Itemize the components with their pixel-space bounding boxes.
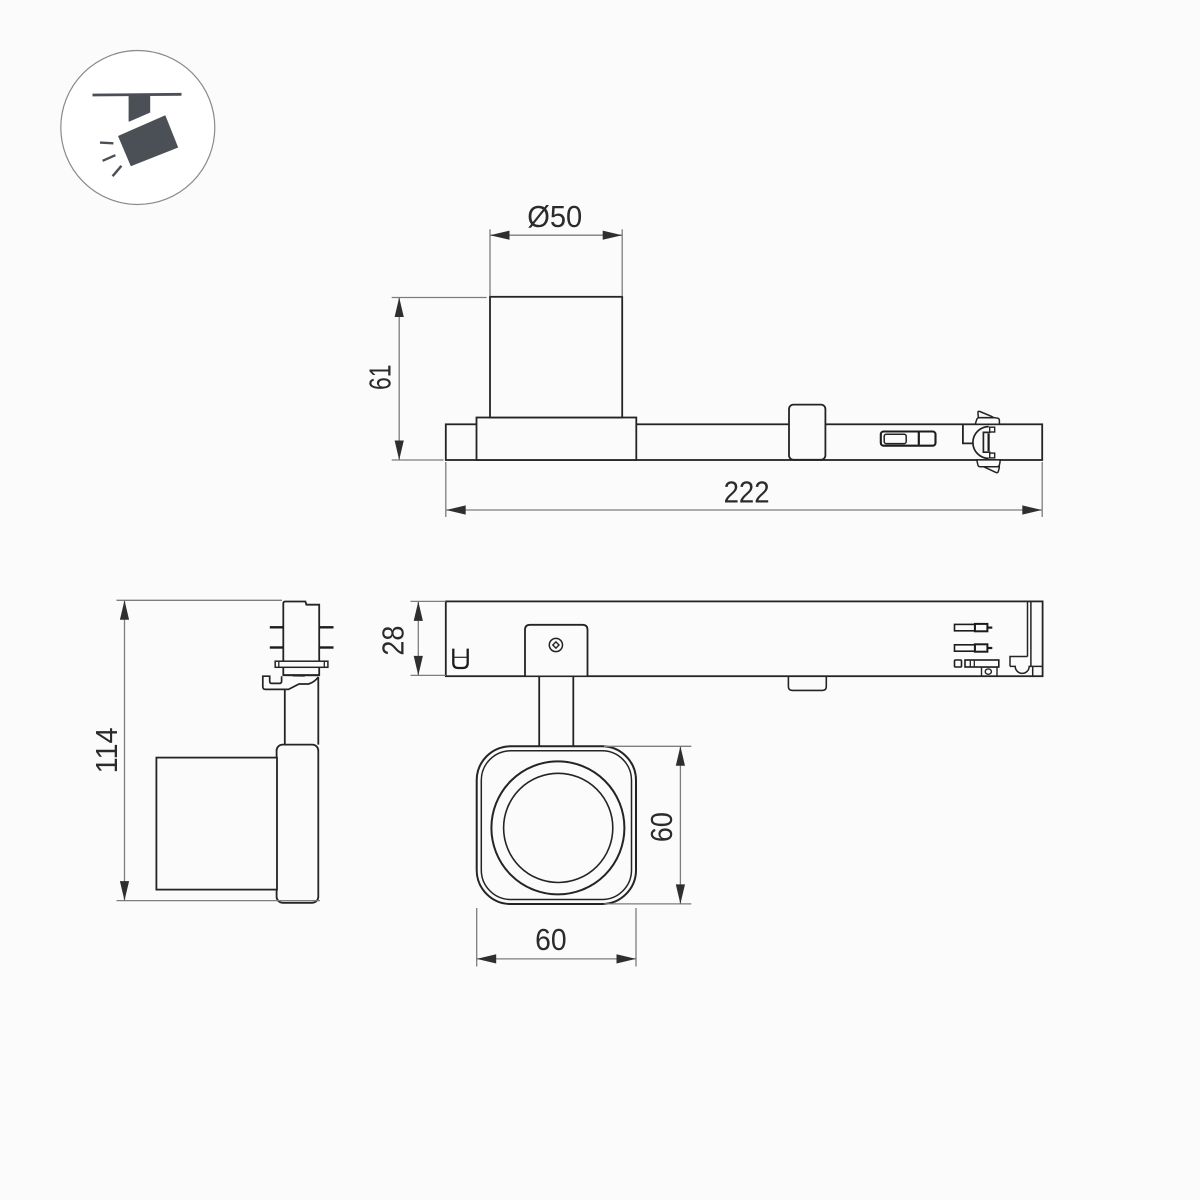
svg-text:28: 28 <box>377 626 411 656</box>
svg-text:60: 60 <box>535 923 567 957</box>
svg-text:222: 222 <box>724 476 770 510</box>
svg-text:60: 60 <box>645 812 679 842</box>
svg-text:Ø50: Ø50 <box>527 200 582 234</box>
svg-text:61: 61 <box>364 364 398 390</box>
svg-text:114: 114 <box>90 727 124 773</box>
